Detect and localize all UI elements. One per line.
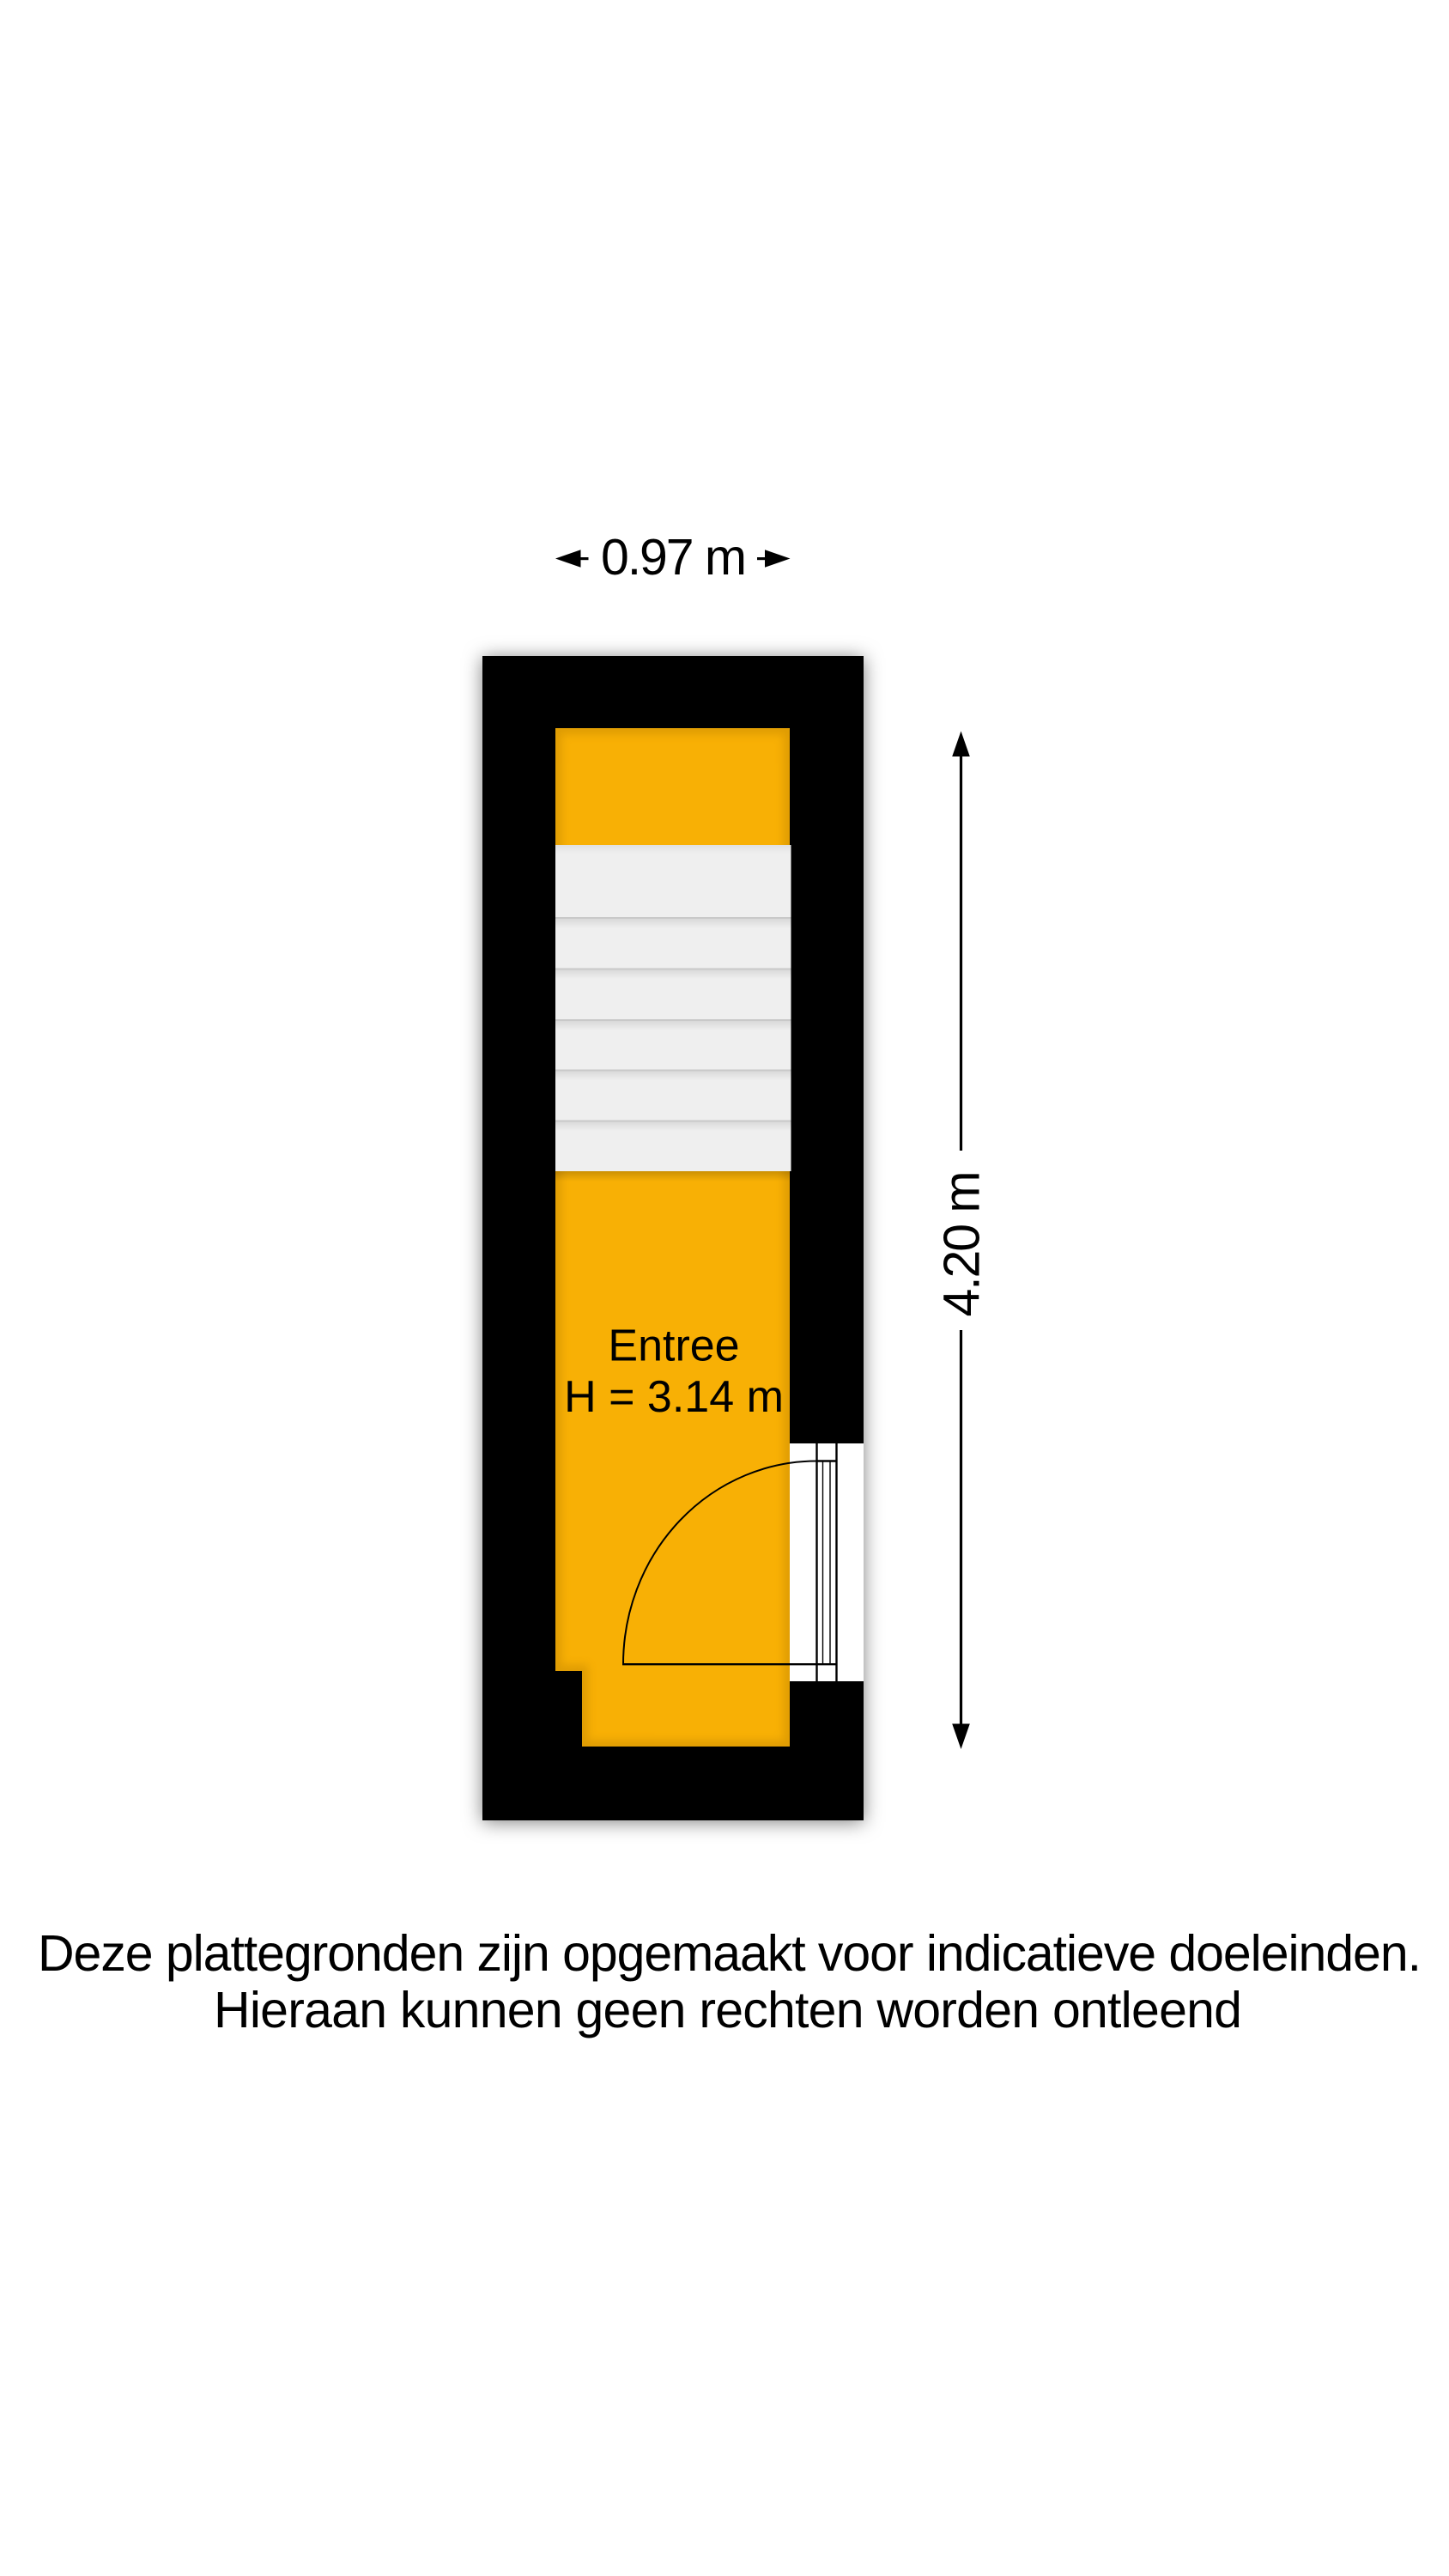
svg-text:Entree: Entree [608,1321,739,1371]
svg-text:H = 3.14 m: H = 3.14 m [564,1372,784,1422]
svg-text:Hieraan kunnen geen rechten wo: Hieraan kunnen geen rechten worden ontle… [214,1982,1242,2038]
svg-text:Deze plattegronden zijn opgema: Deze plattegronden zijn opgemaakt voor i… [38,1925,1422,1982]
svg-text:0.97 m: 0.97 m [601,529,747,586]
svg-text:4.20 m: 4.20 m [934,1171,991,1317]
